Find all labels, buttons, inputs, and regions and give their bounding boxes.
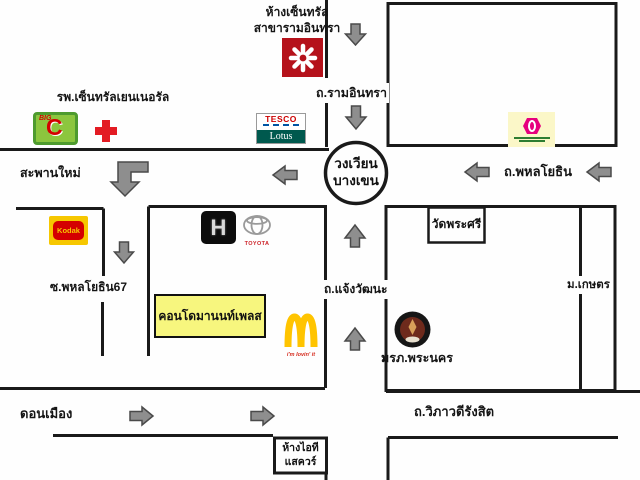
saphan-mai-label: สะพานใหม่ (20, 163, 81, 183)
right-arrow-icon (130, 407, 153, 425)
it-square-line2: แสควร์ (285, 456, 317, 470)
roundabout-line1: วงเวียน (334, 156, 378, 173)
down-arrow-icon (115, 242, 134, 263)
turn-down-arrow-icon (111, 162, 148, 196)
mcdonalds-logo-icon: i'm lovin' it (281, 313, 321, 355)
kasetsart-label: ม.เกษตร (565, 276, 612, 294)
toyota-logo-icon: TOYOTA (241, 214, 273, 244)
sripatum-university-logo-icon (508, 112, 555, 147)
don-mueang-label: ดอนเมือง (20, 403, 72, 424)
tesco-lotus-logo-icon: TESCO Lotus (256, 113, 306, 144)
logo-text-line (514, 137, 550, 139)
it-square-label: ห้างไอที แสควร์ (276, 439, 325, 472)
left-arrow-icon (465, 163, 489, 181)
phranakhon-rajabhat-seal-icon (394, 311, 431, 348)
central-mall-line1: ห้างเซ็นทรัล (247, 5, 347, 21)
road-label-chaeng-watthana: ถ.แจ้งวัฒนะ (322, 280, 389, 299)
toyota-wordmark: TOYOTA (241, 241, 273, 247)
down-arrow-icon (346, 24, 366, 45)
wat-phra-si-label: วัดพระศรี (429, 208, 484, 241)
right-arrow-icon (251, 407, 274, 425)
down-arrow-icon (346, 106, 366, 129)
honda-logo-icon: H (201, 211, 236, 244)
toyota-emblem-icon (242, 214, 272, 236)
big-c-letter: C (46, 114, 63, 141)
left-arrow-icon (587, 163, 611, 181)
road-label-phahonyothin: ถ.พหลโยธิน (494, 161, 582, 182)
road-label-vibhavadi: ถ.วิภาวดีรังสิต (414, 401, 494, 422)
kodak-logo-icon: Kodak (49, 216, 88, 245)
central-mall-label: ห้างเซ็นทรัล สาขารามอินทรา (247, 5, 347, 36)
road-label-ramindra: ถ.รามอินทรา (314, 83, 389, 103)
pink-hexagon-icon (522, 117, 542, 135)
flower-icon (288, 43, 318, 73)
soi-phahonyothin67-label: ซ.พหลโยธิน67 (50, 278, 127, 297)
tesco-wordmark: TESCO (257, 114, 305, 124)
big-c-logo-icon: BIG C (33, 112, 78, 145)
hospital-cross-icon (94, 119, 118, 143)
mcdonalds-tagline: i'm lovin' it (281, 352, 321, 358)
up-arrow-icon (345, 225, 365, 247)
golden-arches-icon (282, 313, 320, 347)
tesco-dashes (263, 124, 299, 126)
roundabout-label: วงเวียน บางเขน (327, 152, 385, 194)
honda-h: H (211, 215, 227, 241)
left-arrow-icon (273, 166, 297, 184)
bang-khen-area-map: ห้างเซ็นทรัล สาขารามอินทรา ถ.รามอินทรา ร… (0, 0, 640, 480)
it-square-line1: ห้างไอที (282, 442, 318, 456)
roundabout-line2: บางเขน (333, 173, 379, 190)
central-mall-line2: สาขารามอินทรา (247, 21, 347, 37)
phranakhon-rajabhat-label: มรภ.พระนคร (381, 348, 453, 368)
block-bottom-right (388, 438, 618, 480)
central-department-store-logo-icon (282, 38, 323, 77)
block-top-right (388, 4, 616, 146)
condo-manon-place-box: คอนโดมานนท์เพลส (154, 294, 266, 338)
lotus-wordmark: Lotus (257, 130, 305, 143)
logo-text-line (519, 140, 545, 142)
kodak-wordmark: Kodak (53, 221, 84, 240)
hospital-label: รพ.เซ็นทรัลเยนเนอรัล (55, 88, 171, 107)
up-arrow-icon (345, 328, 365, 350)
